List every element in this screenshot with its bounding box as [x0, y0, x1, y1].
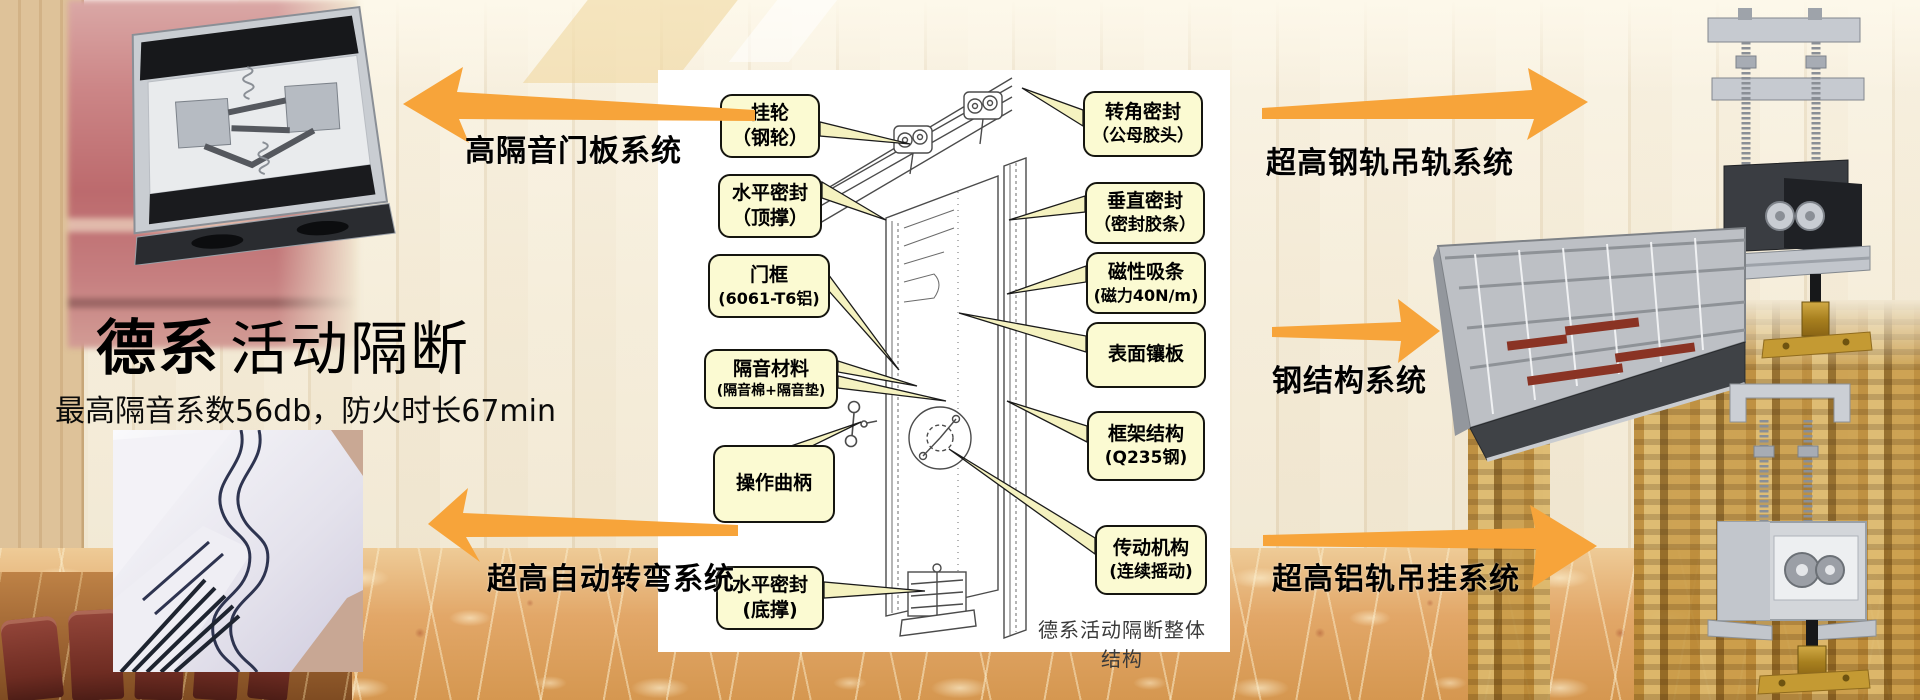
callout-line: 隔音材料 [733, 357, 809, 382]
callout-door-frame: 门框 (6061-T6铝) [708, 254, 830, 318]
callout-line: (隔音棉+隔音垫) [717, 382, 826, 400]
callout-line: 传动机构 [1113, 536, 1189, 561]
callout-line: 垂直密封 [1107, 189, 1183, 214]
callout-line: 水平密封 [732, 573, 808, 598]
banquet-chair [0, 615, 64, 700]
callout-surface-panel: 表面镶板 [1086, 322, 1206, 388]
callout-line: 转角密封 [1105, 100, 1181, 125]
callout-line: （顶撑） [732, 206, 808, 231]
callout-line: （钢轮） [732, 126, 808, 151]
label-steel-rail-system: 超高钢轨吊轨系统 [1266, 138, 1514, 182]
curved-track-photo [113, 430, 363, 672]
product-title: 德系活动隔断 [96, 300, 470, 387]
callout-line: 门框 [750, 263, 788, 288]
callout-line: （公母胶头） [1092, 125, 1194, 147]
callout-line: 水平密封 [732, 181, 808, 206]
label-door-panel-system: 高隔音门板系统 [465, 126, 682, 170]
callout-vertical-seal: 垂直密封 （密封胶条） [1085, 182, 1205, 244]
callout-line: 挂轮 [751, 101, 789, 126]
callout-line: 表面镶板 [1108, 342, 1184, 367]
callout-line: (Q235钢) [1105, 447, 1187, 469]
callout-line: （密封胶条） [1094, 214, 1196, 236]
callout-line: 框架结构 [1108, 422, 1184, 447]
callout-hanger-wheel: 挂轮 （钢轮） [720, 94, 820, 158]
aluminum-rail-hanger-photo [1702, 380, 1882, 695]
label-auto-turn-system: 超高自动转弯系统 [487, 554, 735, 598]
callout-line: 操作曲柄 [736, 471, 812, 496]
label-aluminum-rail-system: 超高铝轨吊挂系统 [1272, 554, 1520, 598]
callout-top-seal: 水平密封 （顶撑） [718, 174, 822, 238]
poster: 挂轮 （钢轮） 水平密封 （顶撑） 门框 (6061-T6铝) 隔音材料 (隔音… [0, 0, 1920, 700]
callout-line: (6061-T6铝) [718, 288, 820, 309]
steel-structure-frame-photo [1415, 218, 1750, 473]
product-title-light: 活动隔断 [230, 315, 470, 383]
callout-magnetic-strip: 磁性吸条 (磁力40N/m) [1086, 252, 1206, 314]
product-subtitle: 最高隔音系数56db，防火时长67min [55, 386, 556, 430]
callout-frame-structure: 框架结构 (Q235钢) [1087, 411, 1205, 481]
callout-line: (磁力40N/m) [1094, 285, 1199, 306]
callout-acoustic-material: 隔音材料 (隔音棉+隔音垫) [704, 349, 838, 409]
callout-line: (连续摇动) [1109, 561, 1193, 583]
callout-crank-handle: 操作曲柄 [713, 445, 835, 523]
callout-line: 磁性吸条 [1108, 260, 1184, 285]
callout-drive-mechanism: 传动机构 (连续摇动) [1095, 525, 1207, 595]
diagram-caption: 德系活动隔断整体结构 [1030, 614, 1214, 672]
label-steel-structure-system: 钢结构系统 [1272, 356, 1427, 400]
callout-corner-seal: 转角密封 （公母胶头） [1083, 91, 1203, 157]
structure-diagram-panel: 挂轮 （钢轮） 水平密封 （顶撑） 门框 (6061-T6铝) 隔音材料 (隔音… [658, 70, 1230, 652]
product-title-strong: 德系 [96, 314, 220, 384]
callout-line: (底撑) [742, 598, 797, 623]
door-panel-top-photo [100, 5, 400, 265]
